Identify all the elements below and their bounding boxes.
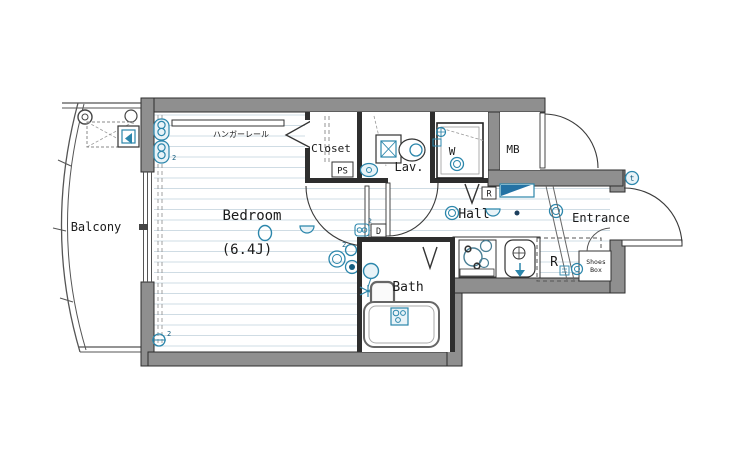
svg-text:t: t [630,174,635,183]
lavatory-label: Lav. [395,160,424,174]
bedroom-size-label: (6.4J) [222,242,273,258]
pipe-space-label: PS [337,167,348,177]
hand-sink-icon [361,164,378,177]
meter-box-area: MB [500,112,598,170]
bathtub-icon [364,302,439,347]
outlet-count-label: 2 [167,330,171,338]
hanger-rail-label: ハンガーレール [213,129,269,139]
hall-label: Hall [458,207,489,222]
laundry-area: W [433,112,488,183]
floorplan-canvas: Balcony ハンガーレール Bedroom (6.4J) [0,0,730,470]
entrance-door-leaf [622,240,682,246]
escape-hatch-icon [87,122,139,147]
entrance-door-arc [624,188,682,243]
shoes-box-label: Box [590,266,602,274]
upper-cabinet-icon [500,184,534,197]
hanger-rail [172,120,284,126]
fridge-label: R [550,255,558,270]
return-box-label: R [486,190,492,200]
entrance-label: Entrance [572,211,630,225]
meter-box-door-arc [545,114,598,168]
intercom-icon: t [626,172,639,185]
shoes-box-label: Shoes [586,258,606,266]
bath-area: Bath D 2 [355,217,455,352]
meter-box-label: MB [506,143,520,156]
balcony-area: Balcony [53,103,148,352]
sensor-dot [515,211,520,216]
stove-icon [459,240,496,277]
balcony-label: Balcony [71,220,122,234]
door-box-label: D [376,227,381,237]
sink-icon [505,240,535,277]
bath-label: Bath [392,280,423,295]
window [139,172,152,282]
lavatory-door-leaf [386,183,390,236]
meter-box-door-leaf [540,113,545,168]
kitchen-counter [453,237,540,278]
closet-area: Closet PS [305,112,362,183]
bedroom-label: Bedroom [222,208,281,224]
drain-icon [125,110,137,122]
closet-label: Closet [311,142,351,155]
laundry-label: W [449,145,456,158]
outlet-count-label: 2 [172,154,176,162]
outlet-count-label: 2 [368,217,372,225]
